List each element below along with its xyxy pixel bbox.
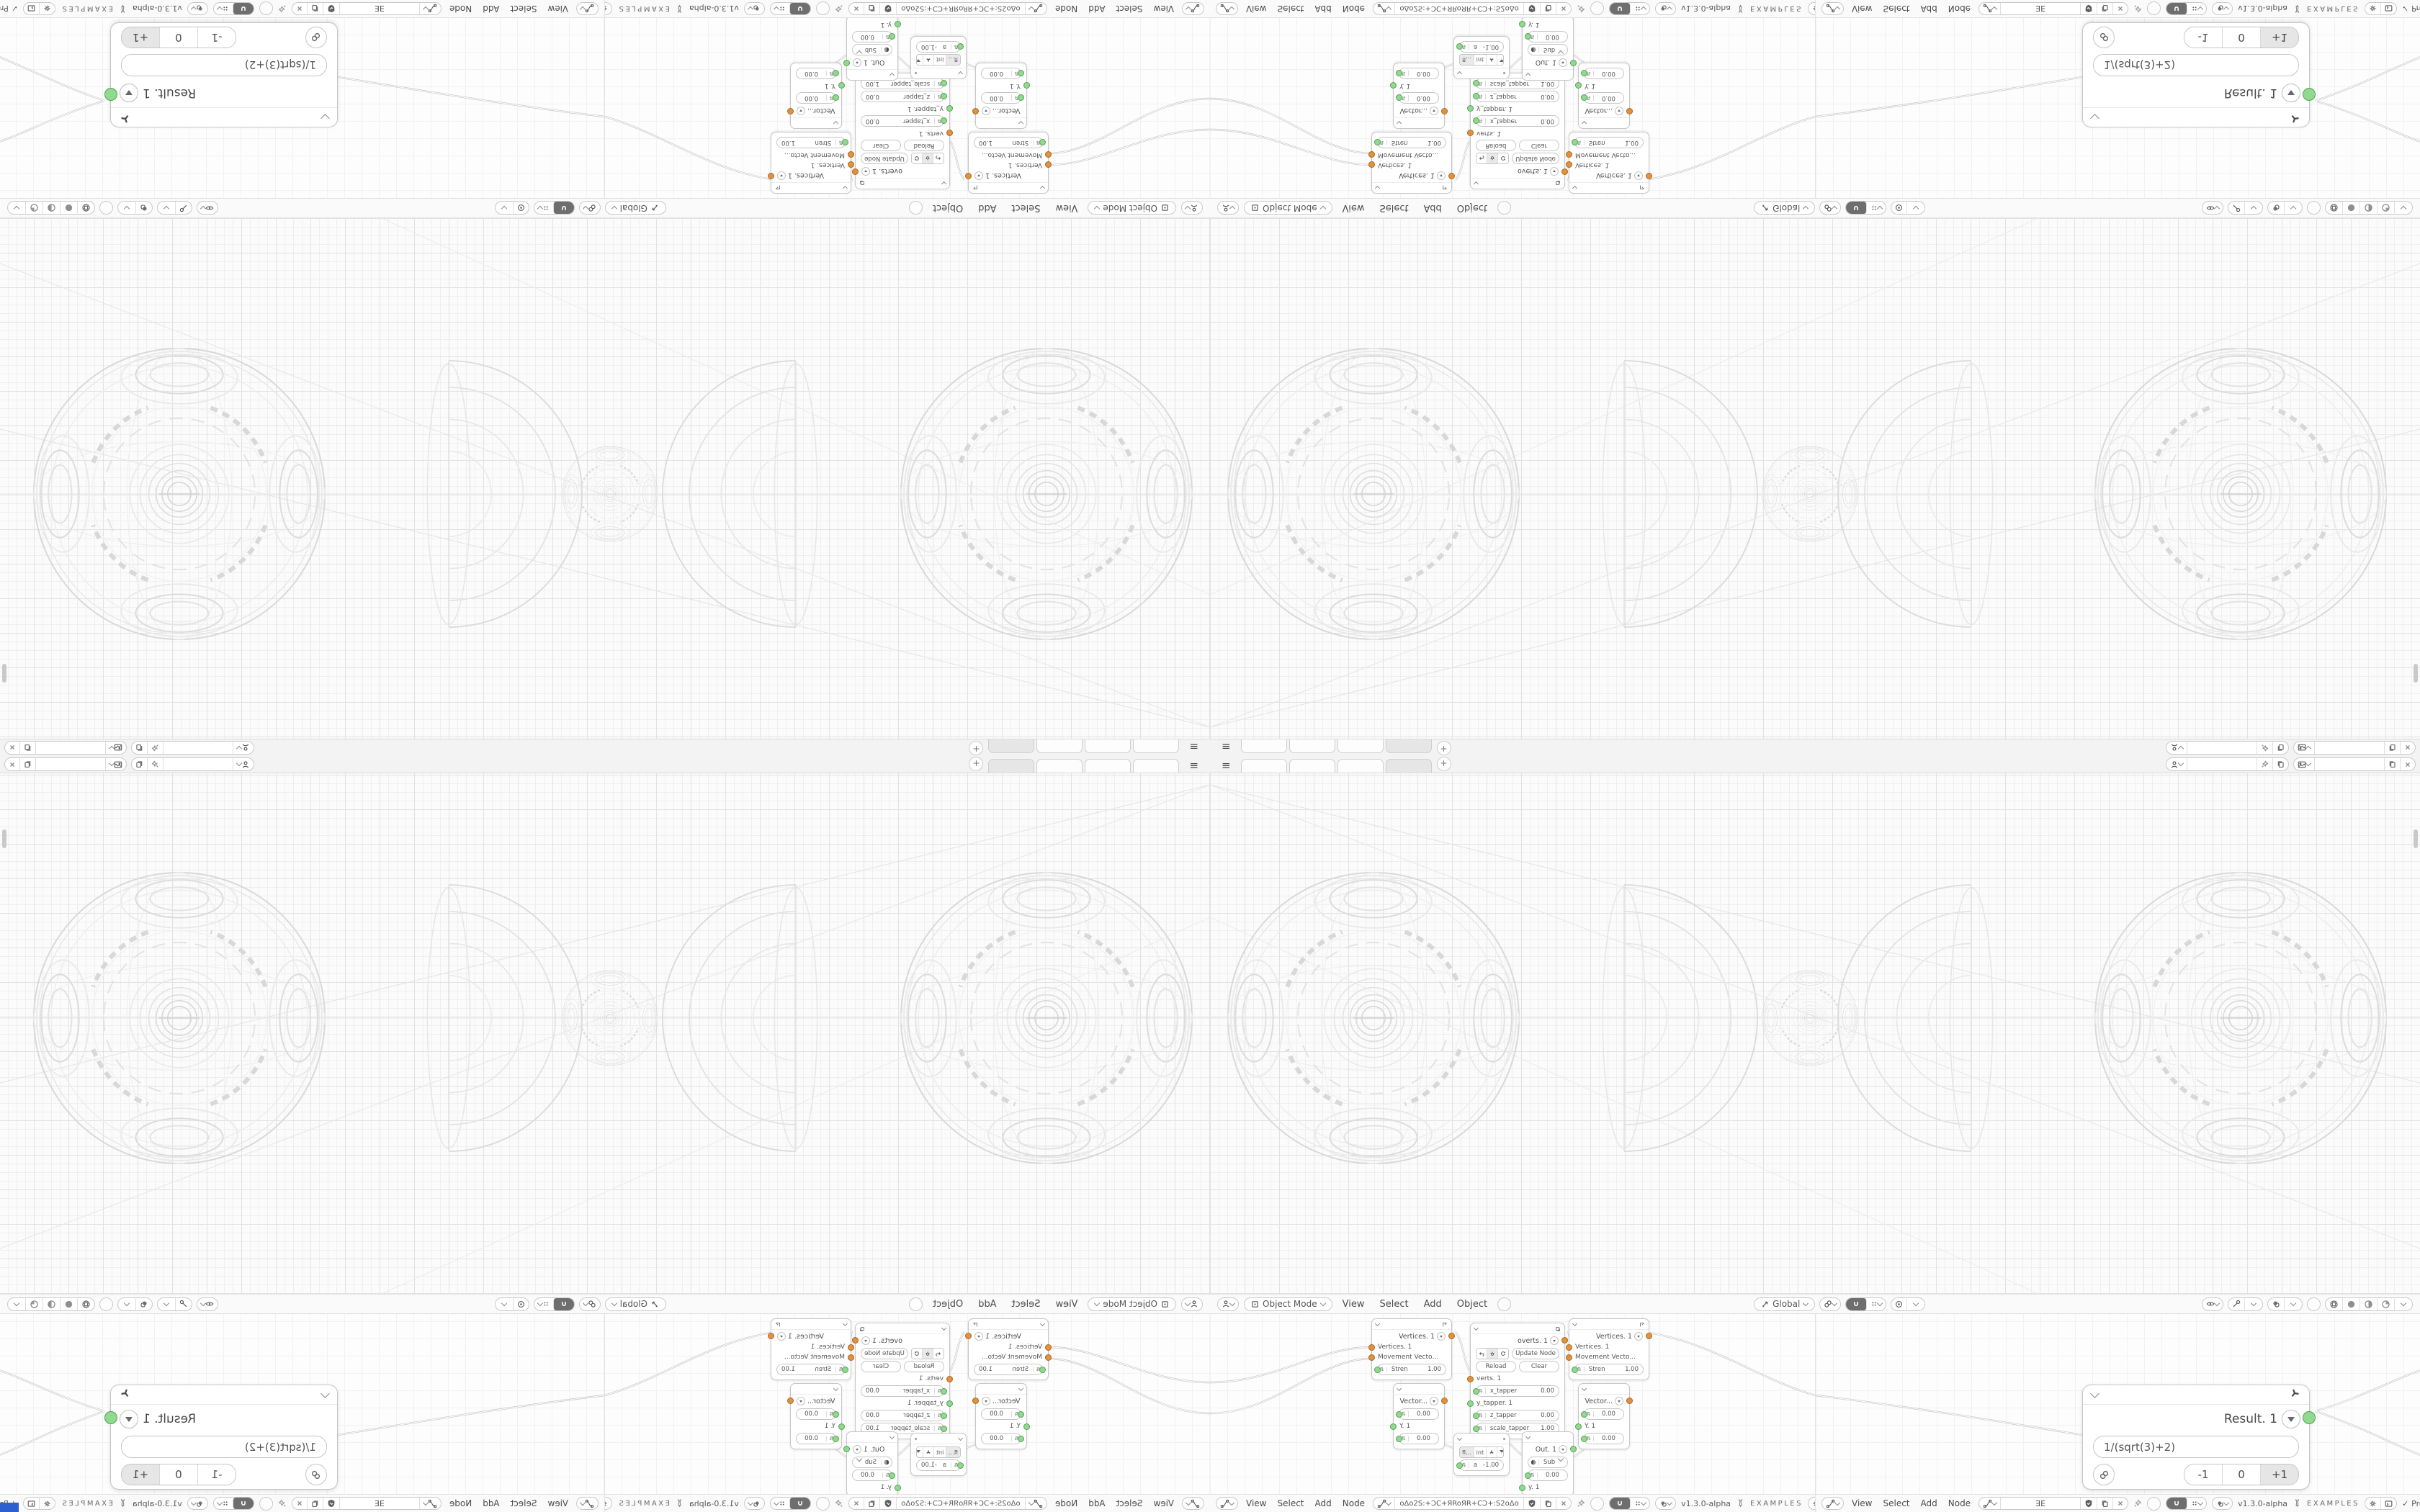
dropdown-button[interactable] [982,1397,990,1405]
add-workspace-button[interactable]: + [969,741,983,755]
mode-dropdown[interactable]: Object Mode [1088,202,1176,215]
update-node-button[interactable]: Update Node [1512,1348,1559,1359]
visibility-dropdown[interactable] [2202,1297,2223,1311]
decrement-button[interactable]: -1 [197,1464,236,1485]
workspace-tab[interactable] [1337,759,1384,773]
examples-label[interactable]: EXAMPLES [2307,5,2359,13]
menu-add[interactable]: Add [1419,1299,1447,1310]
pin-icon[interactable] [835,1497,843,1511]
overlays-dropdown[interactable] [2212,2,2233,15]
dropdown-button[interactable] [974,1332,983,1341]
input-socket[interactable] [941,1413,947,1419]
viewport-3d[interactable] [0,773,1210,1294]
input-socket[interactable] [946,1376,953,1382]
menu-add[interactable]: Add [1419,203,1447,214]
overlays-dropdown[interactable] [117,202,153,215]
collapse-chevron[interactable] [2090,1389,2099,1398]
view-layer-field[interactable] [2315,742,2385,754]
value-field[interactable]: ⇅0.00 [852,31,892,42]
snap-icon[interactable] [789,1498,810,1509]
input-socket[interactable] [848,1354,854,1361]
node-vertices[interactable]: Vertices. 1 Vertices. 1 Movement Vecto..… [1569,132,1649,194]
output-socket[interactable] [852,168,859,175]
input-socket[interactable] [1045,152,1052,158]
proportional-edit-controls[interactable] [495,1297,529,1311]
overlays-dropdown[interactable] [2212,1497,2233,1510]
scene-selector[interactable] [131,741,254,755]
expression-field[interactable]: 1/(sqrt(3)+2) [121,54,327,76]
utility-buttons[interactable] [2365,1497,2397,1510]
snap-controls[interactable] [1845,202,1886,215]
viewport-3d[interactable] [1210,218,2420,739]
shading-material-icon[interactable] [42,1298,60,1310]
shading-rendered-icon[interactable] [25,1298,42,1310]
input-socket[interactable] [1368,152,1375,158]
zero-button[interactable]: 0 [159,27,197,48]
parent-circle[interactable] [816,2,830,16]
examples-label[interactable]: EXAMPLES [2307,1500,2359,1508]
output-socket[interactable] [1561,1337,1568,1344]
output-socket[interactable] [2303,88,2316,101]
menu-view[interactable]: View [1849,4,1875,14]
add-workspace-button[interactable]: + [1437,757,1451,771]
dropdown-button[interactable] [2282,84,2300,102]
node-vertices[interactable]: Vertices. 1 Vertices. 1 Movement Vecto..… [771,1318,851,1380]
node-vector[interactable]: Vector... ⇅0.00 Y. 1 ⇅0.00 [790,63,842,129]
operation-dropdown[interactable]: Sub [852,44,892,55]
input-socket[interactable] [848,162,854,168]
output-socket[interactable] [1570,1446,1577,1452]
scene-selector[interactable] [2166,757,2289,771]
workspace-tab[interactable] [1085,759,1131,773]
node-out[interactable]: Out. 1 Sub ⇅0.00 y. 1 [846,1431,898,1496]
dropdown-button[interactable] [861,167,870,176]
close-icon[interactable] [2401,742,2415,754]
menu-view[interactable]: View [545,1498,571,1508]
value-field[interactable]: ⇅0.00 [981,68,1021,79]
value-field[interactable]: ⇅z_tapper0.00 [1476,91,1559,102]
shading-wireframe-icon[interactable] [2326,202,2343,215]
snap-controls[interactable] [2166,1497,2207,1510]
zero-button[interactable]: 0 [159,1464,197,1485]
dropdown-button[interactable] [1437,1332,1446,1341]
close-icon[interactable] [849,3,864,14]
snap-icon[interactable] [233,3,254,14]
output-socket[interactable] [972,108,979,114]
copy-icon[interactable] [1541,3,1556,14]
node-out[interactable]: Out. 1 Sub ⇅0.00 y. 1 [1522,1431,1574,1496]
input-socket[interactable] [848,152,854,158]
input-socket[interactable] [833,71,839,77]
shading-wireframe-icon[interactable] [2326,1298,2343,1310]
output-socket[interactable] [1626,108,1633,114]
close-icon[interactable] [1556,1498,1571,1509]
menu-select[interactable]: Select [1113,4,1145,14]
overlays-dropdown[interactable] [744,1497,765,1510]
expression-field[interactable]: 1/(sqrt(3)+2) [2093,54,2299,76]
input-socket[interactable] [1467,1400,1474,1407]
fake-user-shield-icon[interactable] [323,1498,339,1509]
pivot-dropdown[interactable] [579,202,601,215]
workspace-tab-active[interactable] [1386,739,1432,753]
input-socket[interactable] [1566,162,1572,168]
menu-select[interactable]: Select [1374,1299,1413,1310]
input-socket[interactable] [941,1426,947,1432]
menu-select[interactable]: Select [1374,203,1413,214]
examples-label[interactable]: EXAMPLES [60,1500,113,1508]
overlays-dropdown[interactable] [2267,202,2303,215]
input-socket[interactable] [946,130,953,137]
gizmo-dropdown[interactable] [2228,202,2263,215]
value-field[interactable]: ⇅z_tapper0.00 [861,1410,944,1421]
dropdown-button[interactable] [120,1410,138,1428]
overlays-dropdown[interactable] [117,1297,153,1311]
snap-target-icon[interactable] [534,202,553,215]
input-socket[interactable] [1519,1485,1525,1491]
snap-controls[interactable] [770,1497,811,1510]
input-socket[interactable] [1519,22,1525,28]
utility-buttons[interactable] [605,1497,612,1510]
node-vertices[interactable]: Vertices. 1 Vertices. 1 Movement Vecto..… [968,1318,1049,1380]
proportional-falloff[interactable] [1907,1298,1924,1310]
menu-select[interactable]: Select [1006,203,1045,214]
node-vertices[interactable]: Vertices. 1 Vertices. 1 Movement Vecto..… [968,132,1049,194]
increment-button[interactable]: +1 [122,1464,159,1485]
close-icon[interactable] [2113,3,2128,14]
view-layer-selector[interactable] [4,757,127,771]
node-editor[interactable]: Vertices. 1 Vertices. 1 Movement Vecto..… [605,0,1210,198]
node-math[interactable]: fl... int ⇅a-1.00 [1453,1433,1510,1476]
shading-rendered-icon[interactable] [2378,1298,2395,1310]
scene-selector[interactable] [2166,741,2289,755]
shading-mode-switcher[interactable] [7,202,95,215]
menu-add[interactable]: Add [1085,4,1108,14]
snap-controls[interactable] [534,1297,575,1311]
scene-name-field[interactable] [2187,758,2257,770]
decrement-button[interactable]: -1 [197,27,236,48]
pin-icon[interactable] [2257,758,2273,770]
menu-add[interactable]: Add [1918,4,1940,14]
dropdown-button[interactable] [1550,1336,1559,1345]
add-workspace-button[interactable]: + [969,757,983,771]
shading-rendered-icon[interactable] [25,202,42,215]
copy-icon[interactable] [864,1498,879,1509]
input-socket[interactable] [1456,1462,1463,1469]
output-socket[interactable] [1561,168,1568,175]
value-field[interactable]: ⇅Stren1.00 [1377,1364,1446,1375]
tool-circle[interactable] [1497,1297,1511,1311]
reload-button[interactable]: Reload [1476,140,1516,151]
tree-selector[interactable]: ƎE [292,2,442,15]
menu-add[interactable]: Add [973,1299,1001,1310]
tree-name-field[interactable]: oΔo2S:+ƆC+ЯRoЯR+CƆ+:S2oΔo [1395,3,1524,14]
input-socket[interactable] [1018,1411,1024,1418]
input-socket[interactable] [1045,162,1052,168]
examples-label[interactable]: EXAMPLES [60,5,113,13]
pin-icon[interactable] [147,758,163,770]
fake-user-shield-icon[interactable] [1524,3,1541,14]
copy-icon[interactable] [132,742,147,754]
input-socket[interactable] [848,1344,854,1351]
visibility-dropdown[interactable] [2202,202,2223,215]
tree-name-field[interactable]: ƎE [339,3,419,14]
node-vector[interactable]: Vector... ⇅0.00 Y. 1 ⇅0.00 [1578,1383,1630,1449]
workspace-tab[interactable] [1036,759,1083,773]
pin-icon[interactable] [1577,1497,1585,1511]
increment-button[interactable]: +1 [2261,1464,2298,1485]
node-math[interactable]: fl... int ⇅a-1.00 [910,36,967,79]
input-socket[interactable] [1581,1436,1587,1442]
gear-icon[interactable] [605,3,611,14]
value-field[interactable]: ⇅0.00 [852,1470,892,1481]
tool-circle[interactable] [909,202,923,215]
value-field[interactable]: ⇅0.00 [1399,92,1439,104]
terminal-icon[interactable] [24,1498,39,1509]
input-socket[interactable] [1473,1413,1479,1419]
menu-object[interactable]: Object [1452,203,1492,214]
shading-mode-switcher[interactable] [7,1297,95,1311]
pin-icon[interactable] [147,742,163,754]
shading-material-icon[interactable] [2360,202,2378,215]
output-socket[interactable] [2303,1411,2316,1424]
gizmo-dropdown[interactable] [2228,1297,2263,1311]
menu-view[interactable]: View [1051,203,1083,214]
gizmo-dropdown[interactable] [157,202,192,215]
dropdown-button[interactable] [1634,171,1643,180]
copy-icon[interactable] [2273,742,2288,754]
gear-icon[interactable] [1809,3,1815,14]
output-socket[interactable] [965,1333,972,1339]
input-socket[interactable] [1566,1344,1572,1351]
output-socket[interactable] [1448,173,1455,179]
node-editor[interactable]: Result. 1 1/(sqrt(3)+2) -1 0 +1 [1815,1314,2420,1512]
node-vertices[interactable]: Vertices. 1 Vertices. 1 Movement Vecto..… [1569,1318,1649,1380]
shading-rendered-icon[interactable] [2378,202,2395,215]
input-socket[interactable] [1467,106,1474,112]
transform-orientation-dropdown[interactable]: Global [1754,202,1815,215]
shading-material-icon[interactable] [42,202,60,215]
dropdown-button[interactable] [1437,171,1446,180]
snap-icon[interactable] [1610,1498,1631,1509]
dropdown-button[interactable] [1550,167,1559,176]
input-socket[interactable] [941,81,947,87]
editor-type-switcher[interactable] [1217,202,1239,215]
mode-dropdown[interactable]: Object Mode [1088,1297,1176,1311]
pin-icon[interactable] [2257,742,2273,754]
node-vector[interactable]: Vector... ⇅0.00 Y. 1 ⇅0.00 [1393,63,1445,129]
visibility-dropdown[interactable] [197,1297,218,1311]
terminal-icon[interactable] [24,3,39,14]
copy-icon[interactable] [307,1498,323,1509]
output-socket[interactable] [843,1446,850,1452]
value-field[interactable]: ⇅0.00 [1584,1408,1624,1420]
editor-type-switcher[interactable] [1217,1297,1239,1311]
collapse-chevron[interactable] [321,1389,330,1398]
snap-controls[interactable] [213,1497,254,1510]
view-layer-field[interactable] [35,758,105,770]
snap-grid-icon[interactable] [214,1498,233,1509]
workspace-tab[interactable] [1289,739,1335,753]
menu-node[interactable]: Node [1340,4,1368,14]
reload-button[interactable]: Reload [904,1361,944,1372]
collapse-chevron[interactable] [2090,114,2099,123]
node-result[interactable]: Result. 1 1/(sqrt(3)+2) -1 0 +1 [110,22,338,127]
value-field[interactable]: ⇅0.00 [1399,1408,1439,1420]
input-socket[interactable] [1390,1423,1397,1430]
input-socket[interactable] [889,34,895,40]
tree-name-field[interactable]: ƎE [2001,3,2081,14]
parent-circle[interactable] [2147,2,2161,16]
expression-field[interactable]: 1/(sqrt(3)+2) [121,1436,327,1458]
gear-icon[interactable] [39,3,55,14]
node-vector[interactable]: Vector... ⇅0.00 Y. 1 ⇅0.00 [975,63,1027,129]
workspace-tab[interactable] [1241,739,1287,753]
dropdown-button[interactable] [777,1332,786,1341]
shading-solid-icon[interactable] [2343,202,2360,215]
copy-icon[interactable] [132,758,147,770]
pin-icon[interactable] [278,2,287,16]
editor-type-switcher[interactable] [1216,2,1238,15]
snap-icon[interactable] [233,1498,254,1509]
menu-node[interactable]: Node [1340,1498,1368,1508]
dropdown-button[interactable] [982,107,990,115]
viewport-3d[interactable] [1210,773,2420,1294]
pivot-dropdown[interactable] [1819,202,1841,215]
copy-icon[interactable] [2385,758,2401,770]
shading-wireframe-icon[interactable] [77,202,94,215]
examples-label[interactable]: EXAMPLES [617,5,670,13]
gear-icon[interactable] [1809,1498,1815,1509]
menu-add[interactable]: Add [480,1498,502,1508]
utility-buttons[interactable] [1808,1497,1815,1510]
examples-label[interactable]: EXAMPLES [1750,1500,1803,1508]
scene-name-field[interactable] [163,742,233,754]
menu-view[interactable]: View [1337,203,1370,214]
input-socket[interactable] [1575,1423,1582,1430]
link-toggle-button[interactable] [305,27,327,48]
value-field[interactable]: ⇅0.00 [796,1408,836,1420]
increment-button[interactable]: +1 [122,27,159,48]
increment-button[interactable]: +1 [2261,27,2298,48]
node-vector[interactable]: Vector... ⇅0.00 Y. 1 ⇅0.00 [790,1383,842,1449]
view-layer-selector[interactable] [4,741,127,755]
magnet-icon[interactable] [553,202,574,215]
tree-selector[interactable]: oΔo2S:+ƆC+ЯRoЯR+CƆ+:S2oΔo [848,1497,1047,1510]
utility-buttons[interactable] [23,1497,55,1510]
input-socket[interactable] [941,118,947,125]
magnet-icon[interactable] [553,1298,574,1310]
input-socket[interactable] [1525,1472,1531,1479]
shading-material-icon[interactable] [2360,1298,2378,1310]
menu-select[interactable]: Select [1006,1299,1045,1310]
decrement-button[interactable]: -1 [2184,1464,2223,1485]
input-socket[interactable] [842,140,848,146]
input-socket[interactable] [1566,152,1572,158]
editor-type-switcher[interactable] [1182,1497,1204,1510]
pin-icon[interactable] [2133,1497,2142,1511]
menu-add[interactable]: Add [1085,1498,1108,1508]
clear-button[interactable]: Clear [861,1361,901,1372]
node-editor[interactable]: Vertices. 1 Vertices. 1 Movement Vecto..… [1210,0,1815,198]
copy-icon[interactable] [2097,1498,2113,1509]
proportional-falloff[interactable] [496,202,513,215]
overlays-dropdown[interactable] [187,2,208,15]
tree-selector[interactable]: ƎE [1978,1497,2128,1510]
reload-button[interactable]: Reload [1476,1361,1516,1372]
value-field[interactable]: ⇅0.00 [796,68,836,79]
dropdown-button[interactable] [1615,107,1623,115]
input-socket[interactable] [1374,1367,1381,1373]
snap-grid-icon[interactable] [771,1498,789,1509]
input-socket[interactable] [1018,95,1024,102]
node-overts[interactable]: overts. 1 Update Node Reload Clear vert [1470,73,1565,189]
magnet-icon[interactable] [1846,1298,1867,1310]
output-socket[interactable] [768,173,774,179]
update-node-button[interactable]: Update Node [861,1348,908,1359]
workspace-tab[interactable] [1085,739,1131,753]
value-field[interactable]: ⇅x_tapper0.00 [1476,115,1559,127]
workspace-tab[interactable] [1133,739,1179,753]
pin-icon[interactable] [278,1497,287,1511]
fake-user-shield-icon[interactable] [879,1498,896,1509]
transform-orientation-dropdown[interactable]: Global [1754,1297,1815,1311]
node-tool-buttons[interactable] [1476,1348,1509,1359]
viewport-scrollbar[interactable] [2414,829,2418,848]
tree-name-field[interactable]: ƎE [339,1498,419,1509]
input-socket[interactable] [1473,1426,1479,1432]
dropdown-button[interactable] [797,107,805,115]
math-type-switcher[interactable]: fl... int [916,54,961,66]
menu-add[interactable]: Add [480,4,502,14]
snap-controls[interactable] [213,2,254,15]
copy-icon[interactable] [864,3,879,14]
value-field[interactable]: ⇅Stren1.00 [974,1364,1043,1375]
fake-user-shield-icon[interactable] [323,3,339,14]
input-socket[interactable] [1368,162,1375,168]
value-field[interactable]: ⇅0.00 [1584,68,1624,79]
copy-icon[interactable] [307,3,323,14]
output-socket[interactable] [768,1333,774,1339]
snap-grid-icon[interactable] [1631,3,1649,14]
hamburger-icon[interactable]: ≡ [1222,759,1231,772]
node-result[interactable]: Result. 1 1/(sqrt(3)+2) -1 0 +1 [2082,1385,2310,1490]
menu-view[interactable]: View [1849,1498,1875,1508]
input-socket[interactable] [941,94,947,100]
node-vector[interactable]: Vector... ⇅0.00 Y. 1 ⇅0.00 [1578,63,1630,129]
dropdown-button[interactable] [1615,1397,1623,1405]
input-socket[interactable] [957,44,964,50]
menu-add[interactable]: Add [1918,1498,1940,1508]
parent-circle[interactable] [1590,1497,1604,1511]
value-field[interactable]: ⇅0.00 [981,1408,1021,1420]
node-result[interactable]: Result. 1 1/(sqrt(3)+2) -1 0 +1 [110,1385,338,1490]
node-editor[interactable]: Result. 1 1/(sqrt(3)+2) -1 0 +1 [1815,0,2420,198]
value-field[interactable]: ⇅z_tapper0.00 [1476,1410,1559,1421]
value-field[interactable]: ⇅0.00 [1584,1433,1624,1444]
menu-object[interactable]: Object [928,203,968,214]
viewport-3d[interactable] [0,218,1210,739]
gear-icon[interactable] [2365,3,2381,14]
view-layer-field[interactable] [2315,758,2385,770]
input-socket[interactable] [1045,1344,1052,1351]
link-toggle-button[interactable] [305,1464,327,1485]
input-socket[interactable] [1368,1344,1375,1351]
examples-label[interactable]: EXAMPLES [1750,5,1803,13]
input-socket[interactable] [1581,1411,1587,1418]
input-socket[interactable] [946,1400,953,1407]
node-overts[interactable]: overts. 1 Update Node Reload Clear vert [855,73,950,189]
input-socket[interactable] [1045,1354,1052,1361]
